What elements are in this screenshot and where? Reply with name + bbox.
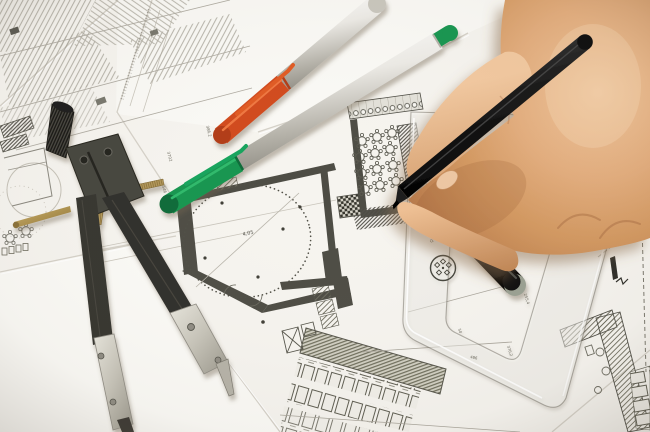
pen-end-plug-cap bbox=[442, 25, 458, 41]
leg-hinge-screw bbox=[188, 324, 195, 331]
checker-block bbox=[337, 194, 361, 218]
leg-screw bbox=[110, 399, 116, 405]
cap-tip bbox=[213, 126, 231, 144]
leg-screw bbox=[98, 353, 104, 359]
knuckle-highlight bbox=[545, 24, 641, 148]
head-screw bbox=[104, 148, 112, 156]
rod-end-nut bbox=[13, 222, 19, 228]
cap-tip bbox=[160, 195, 179, 214]
pen-butt bbox=[577, 34, 593, 50]
cap-opening bbox=[503, 273, 521, 291]
photo-drafting-scene: 4,05 3702 546 386,2 bbox=[0, 0, 650, 432]
head-screw bbox=[80, 156, 88, 164]
